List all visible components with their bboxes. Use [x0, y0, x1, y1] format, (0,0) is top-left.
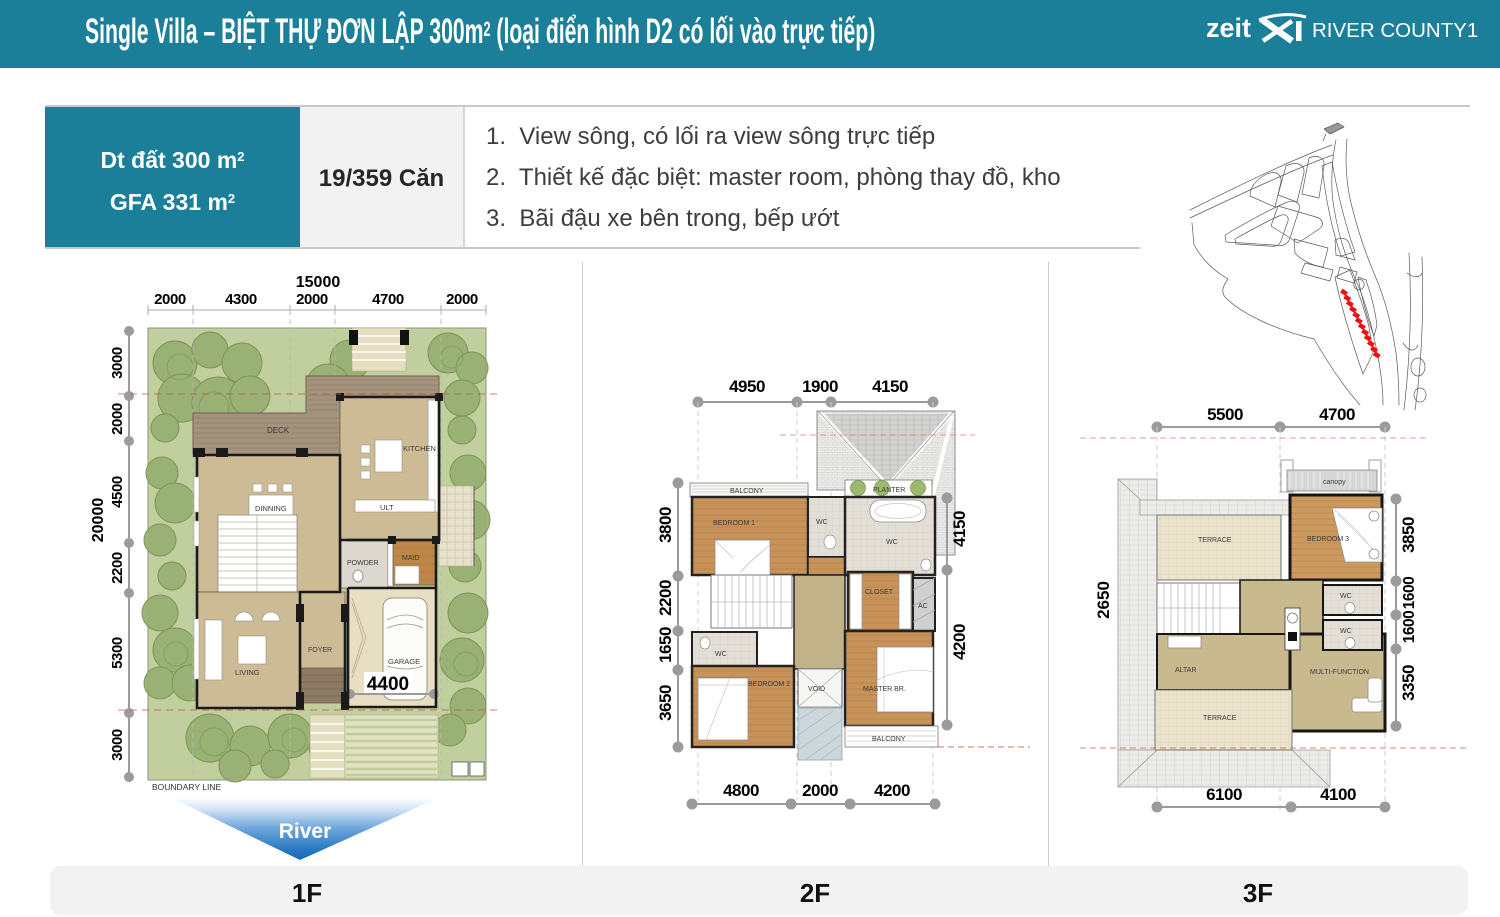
svg-text:4700: 4700 [1319, 405, 1355, 424]
svg-text:1900: 1900 [802, 377, 838, 396]
svg-text:20000: 20000 [90, 498, 107, 543]
svg-text:WC: WC [715, 651, 727, 658]
svg-text:KITCHEN: KITCHEN [403, 444, 436, 453]
svg-text:1650: 1650 [656, 627, 675, 663]
svg-text:ULT: ULT [380, 503, 394, 512]
svg-text:3000: 3000 [109, 347, 126, 379]
svg-text:4700: 4700 [372, 291, 404, 308]
svg-text:VOID: VOID [808, 686, 825, 693]
svg-text:5300: 5300 [109, 637, 126, 669]
svg-text:AC: AC [918, 603, 928, 610]
svg-text:2000: 2000 [446, 291, 478, 308]
svg-text:4500: 4500 [109, 476, 126, 508]
svg-text:ALTAR: ALTAR [1175, 667, 1197, 674]
svg-text:4300: 4300 [225, 291, 257, 308]
svg-text:WC: WC [1340, 593, 1352, 600]
svg-text:FOYER: FOYER [308, 647, 332, 654]
svg-text:15000: 15000 [296, 274, 341, 291]
svg-text:BALCONY: BALCONY [730, 488, 764, 495]
svg-text:TERRACE: TERRACE [1203, 715, 1237, 722]
svg-text:1600: 1600 [1401, 577, 1418, 609]
svg-text:4950: 4950 [729, 377, 765, 396]
svg-text:BEDROOM 2: BEDROOM 2 [748, 681, 790, 688]
svg-text:2200: 2200 [109, 552, 126, 584]
svg-text:4150: 4150 [950, 511, 969, 547]
svg-text:BEDROOM 3: BEDROOM 3 [1307, 536, 1349, 543]
svg-text:BOUNDARY LINE: BOUNDARY LINE [152, 782, 221, 792]
svg-text:TERRACE: TERRACE [1198, 537, 1232, 544]
svg-text:GARAGE: GARAGE [388, 657, 420, 666]
svg-text:River: River [279, 820, 332, 843]
svg-text:4200: 4200 [950, 624, 969, 660]
svg-text:3000: 3000 [109, 729, 126, 761]
svg-text:4800: 4800 [723, 781, 759, 800]
svg-text:2000: 2000 [296, 291, 328, 308]
svg-text:6100: 6100 [1206, 785, 1242, 804]
svg-text:BEDROOM 1: BEDROOM 1 [713, 520, 755, 527]
svg-text:4100: 4100 [1320, 785, 1356, 804]
svg-text:4400: 4400 [367, 674, 409, 695]
svg-text:2200: 2200 [656, 580, 675, 616]
svg-text:3650: 3650 [656, 685, 675, 721]
svg-text:WC: WC [1340, 628, 1352, 635]
svg-text:PLANTER: PLANTER [873, 487, 905, 494]
svg-text:BALCONY: BALCONY [872, 736, 906, 743]
svg-text:canopy: canopy [1323, 479, 1346, 486]
svg-text:3350: 3350 [1399, 665, 1418, 701]
svg-text:2000: 2000 [802, 781, 838, 800]
svg-text:4150: 4150 [872, 377, 908, 396]
svg-text:MULTI-FUNCTION: MULTI-FUNCTION [1310, 669, 1369, 676]
svg-text:MAID: MAID [402, 555, 420, 562]
svg-text:POWDER: POWDER [347, 560, 379, 567]
svg-text:MASTER BR.: MASTER BR. [863, 686, 906, 693]
svg-text:5500: 5500 [1207, 405, 1243, 424]
svg-text:CLOSET: CLOSET [865, 589, 894, 596]
svg-text:3800: 3800 [656, 507, 675, 543]
svg-text:2000: 2000 [109, 403, 126, 435]
svg-text:WC: WC [886, 539, 898, 546]
svg-text:LIVING: LIVING [235, 668, 260, 677]
svg-text:DECK: DECK [267, 426, 290, 435]
svg-text:4200: 4200 [874, 781, 910, 800]
svg-text:3850: 3850 [1399, 517, 1418, 553]
svg-text:WC: WC [816, 519, 828, 526]
svg-text:2650: 2650 [1094, 581, 1113, 619]
svg-text:2000: 2000 [154, 291, 186, 308]
svg-text:1600: 1600 [1401, 611, 1418, 643]
svg-text:DINNING: DINNING [255, 504, 287, 513]
